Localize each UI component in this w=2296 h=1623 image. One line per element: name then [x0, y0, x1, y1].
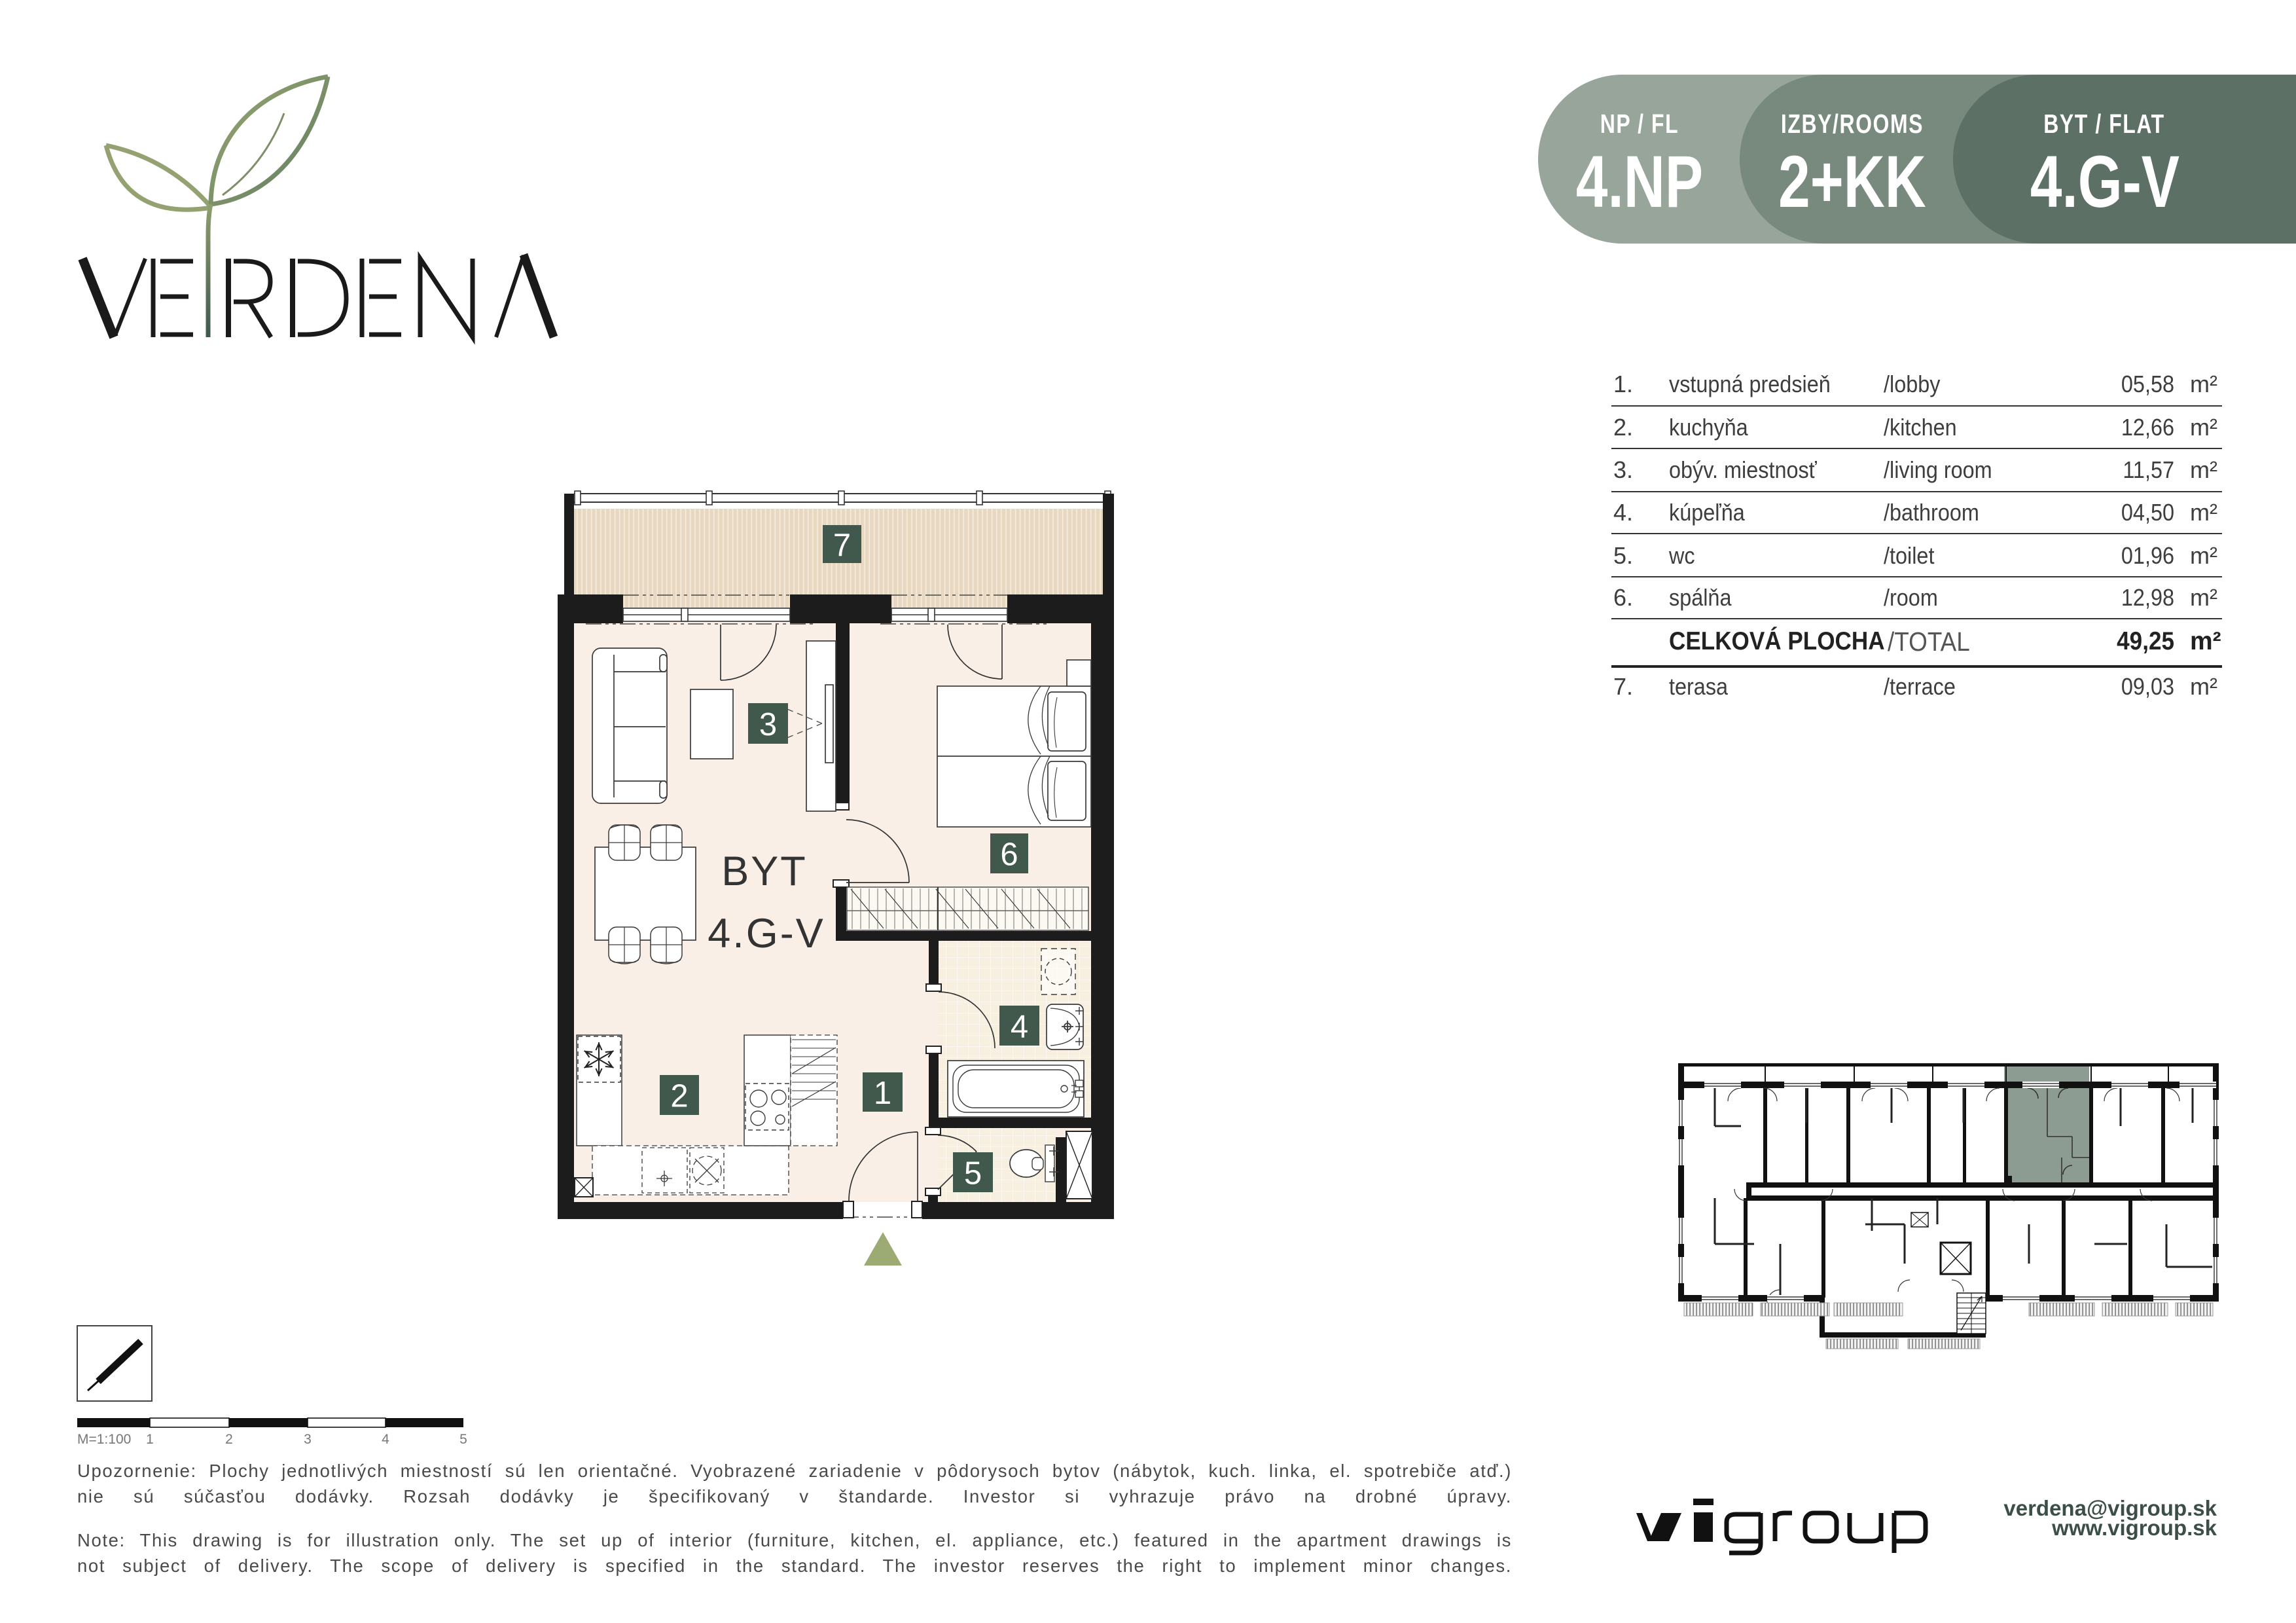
svg-text:5: 5: [459, 1432, 467, 1447]
svg-text:7: 7: [833, 528, 851, 563]
svg-text:1: 1: [874, 1076, 891, 1111]
svg-text:BYT: BYT: [721, 848, 808, 894]
svg-text:6: 6: [1000, 837, 1018, 873]
svg-text:M=1:100: M=1:100: [77, 1432, 131, 1447]
svg-text:1: 1: [146, 1432, 154, 1447]
svg-text:3: 3: [304, 1432, 312, 1447]
svg-text:4: 4: [382, 1432, 389, 1447]
svg-text:2: 2: [225, 1432, 233, 1447]
svg-text:2: 2: [670, 1079, 688, 1114]
svg-text:4.G-V: 4.G-V: [708, 911, 825, 957]
svg-text:3: 3: [759, 707, 777, 742]
svg-text:4: 4: [1011, 1010, 1028, 1045]
svg-text:5: 5: [964, 1156, 982, 1192]
